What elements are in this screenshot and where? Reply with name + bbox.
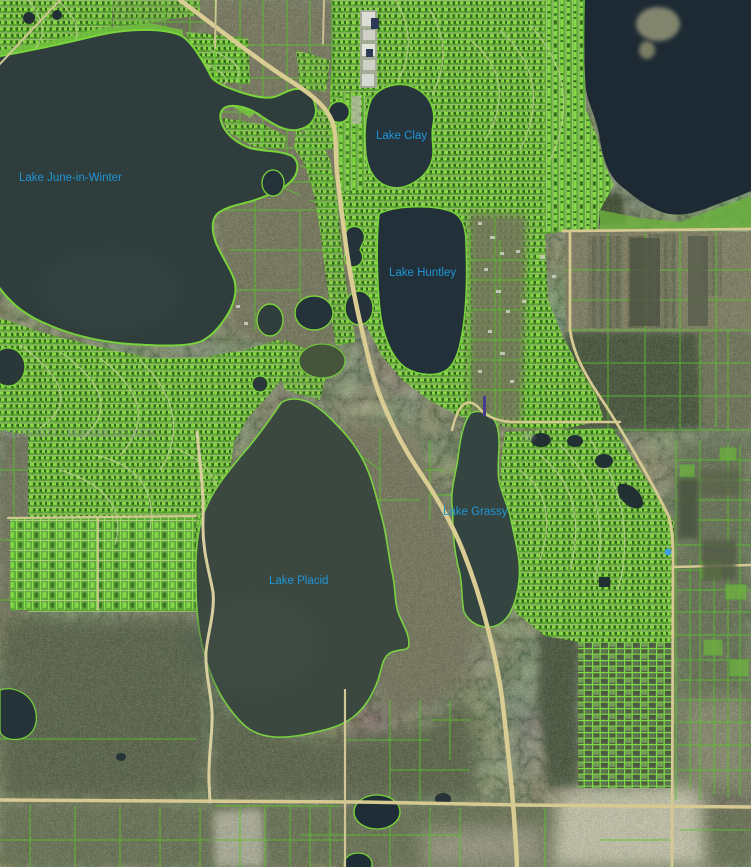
svg-text:Lake Placid: Lake Placid — [269, 575, 328, 587]
svg-text:Lake Huntley: Lake Huntley — [389, 267, 456, 279]
svg-text:Lake Grassy: Lake Grassy — [443, 506, 508, 518]
svg-text:Lake June-in-Winter: Lake June-in-Winter — [19, 172, 122, 184]
svg-text:Lake Clay: Lake Clay — [376, 130, 427, 142]
svg-text:A11853977 - MiamiMLS© 2025: A11853977 - MiamiMLS© 2025 — [2, 428, 155, 440]
